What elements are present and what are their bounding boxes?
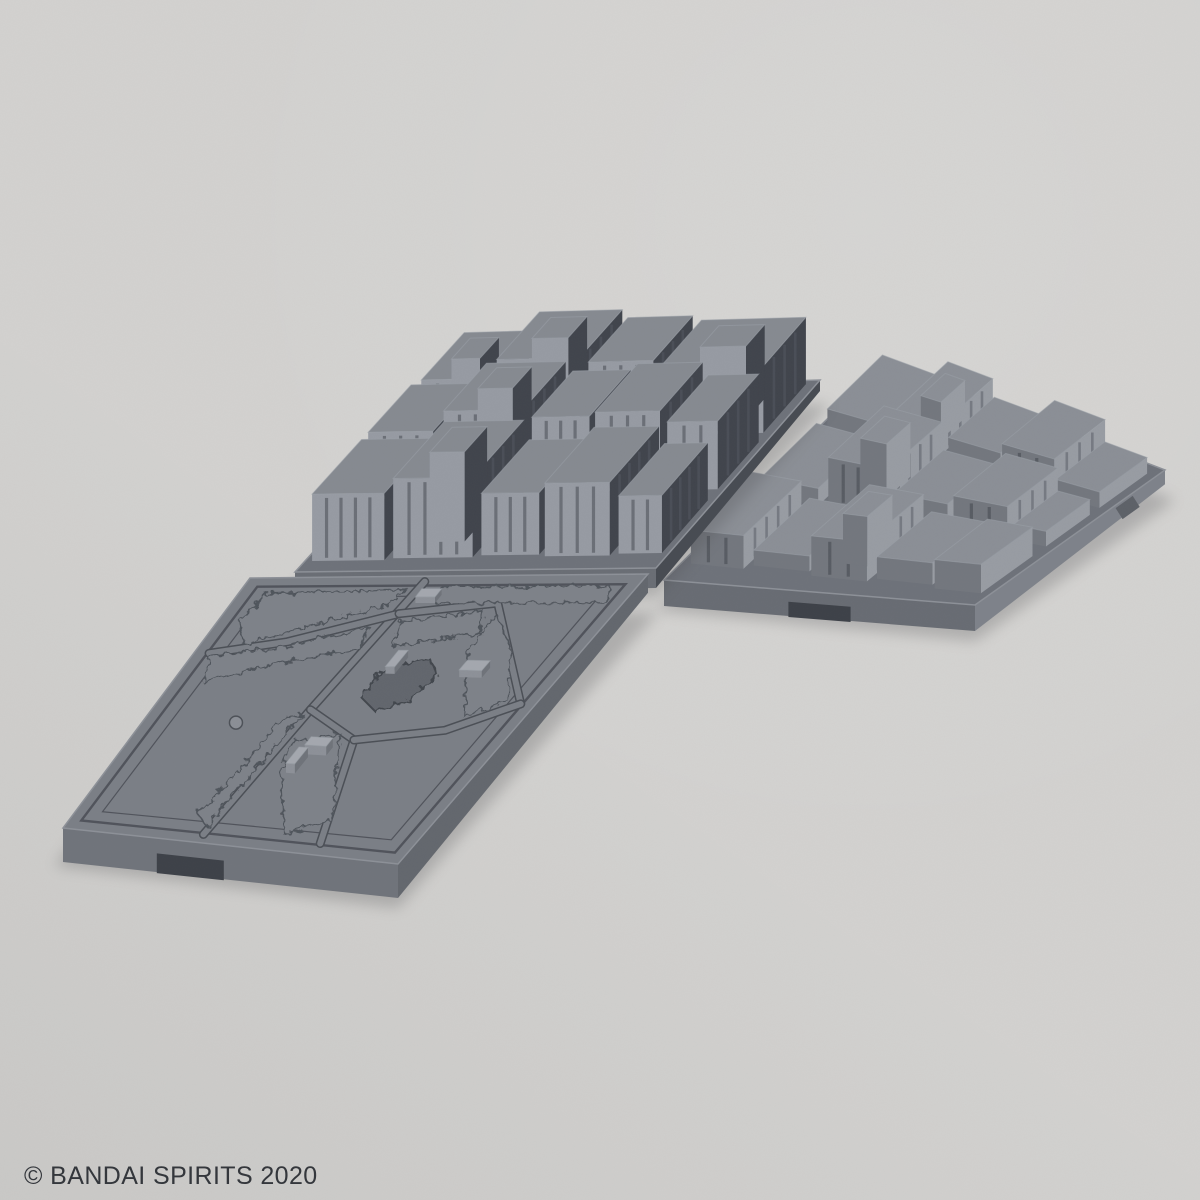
product-photo: © BANDAI SPIRITS 2020 [0, 0, 1200, 1200]
copyright-watermark: © BANDAI SPIRITS 2020 [24, 1161, 318, 1191]
copyright-text: © BANDAI SPIRITS 2020 [24, 1162, 318, 1190]
diorama-scene [0, 0, 1200, 1200]
photo-grain-overlay [0, 0, 1200, 1200]
